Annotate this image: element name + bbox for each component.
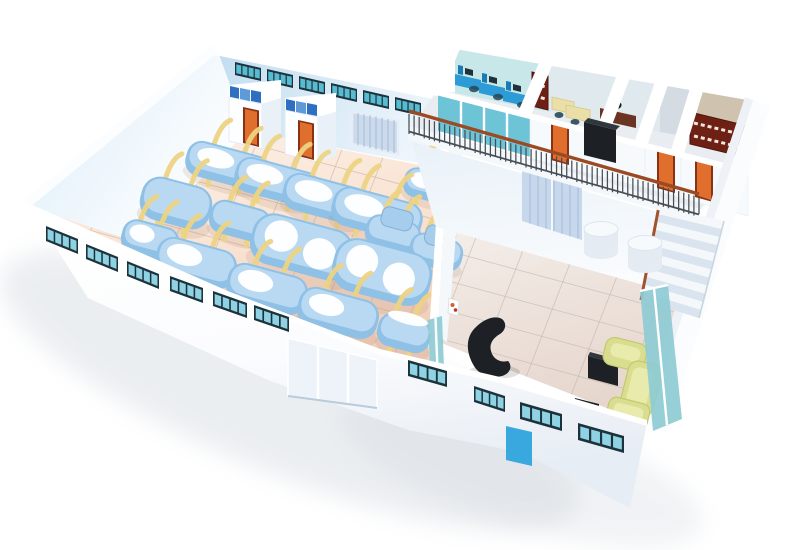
staff-office-door bbox=[551, 123, 569, 165]
window-strip bbox=[306, 80, 311, 90]
window-strip bbox=[242, 66, 247, 76]
factory-3d-floorplan bbox=[0, 0, 800, 550]
window-strip bbox=[255, 69, 260, 79]
window-strip bbox=[281, 74, 286, 84]
window-strip bbox=[476, 389, 482, 402]
side-blue-door bbox=[506, 426, 532, 466]
window-strip bbox=[402, 101, 407, 111]
window-strip bbox=[383, 97, 388, 107]
factory-floorplan-render: Isometric 3D cutaway floor plan of a fac… bbox=[0, 0, 800, 550]
window-strip bbox=[580, 426, 589, 440]
round-stool bbox=[584, 222, 618, 260]
window-strip bbox=[542, 411, 550, 425]
window-strip bbox=[522, 405, 530, 419]
window-strip bbox=[351, 90, 356, 100]
window-strip bbox=[552, 414, 560, 428]
window-strip bbox=[532, 408, 540, 422]
window-strip bbox=[345, 88, 350, 98]
window-strip bbox=[490, 394, 496, 407]
window-strip bbox=[370, 94, 375, 104]
window-strip bbox=[319, 83, 324, 93]
window-strip bbox=[249, 67, 254, 77]
library-door bbox=[695, 159, 713, 202]
window-strip bbox=[396, 99, 401, 109]
window-strip bbox=[377, 95, 382, 105]
window-strip bbox=[410, 363, 417, 376]
round-stool bbox=[628, 236, 662, 274]
window-strip bbox=[236, 64, 241, 74]
window-strip bbox=[419, 366, 426, 379]
window-strip bbox=[602, 433, 611, 447]
window-strip bbox=[364, 92, 369, 102]
window-strip bbox=[338, 87, 343, 97]
window-strip bbox=[613, 436, 622, 450]
window-strip bbox=[483, 391, 489, 404]
window-strip bbox=[300, 78, 305, 88]
window-strip bbox=[268, 71, 273, 81]
window-strip bbox=[498, 396, 504, 409]
window-strip bbox=[428, 368, 435, 381]
black-cabinet bbox=[584, 118, 620, 163]
window-strip bbox=[591, 429, 600, 443]
window-strip bbox=[287, 76, 292, 86]
wall-painting bbox=[448, 298, 459, 316]
window-strip bbox=[313, 81, 318, 91]
window-strip bbox=[438, 371, 445, 384]
